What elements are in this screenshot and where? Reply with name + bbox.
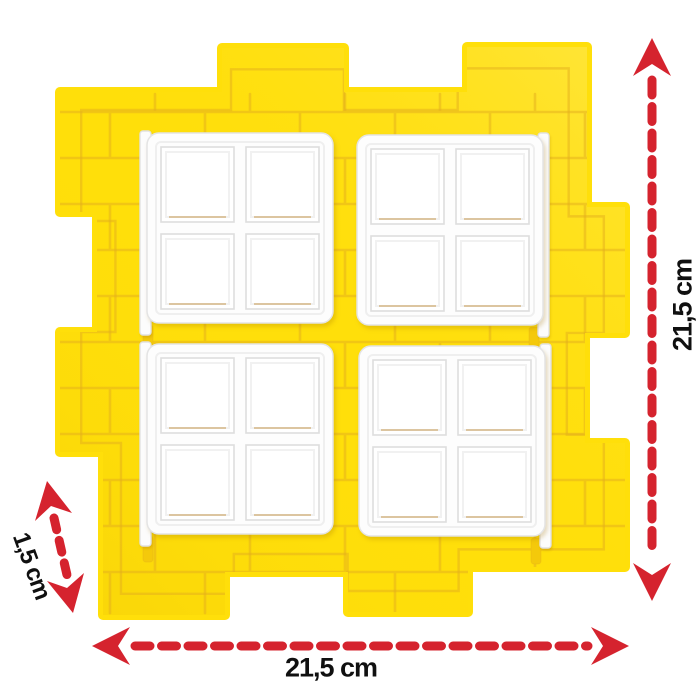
- panel-illustration: [0, 0, 700, 700]
- width-label: 21,5 cm: [285, 655, 377, 682]
- product-dimension-image: 21,5 cm 21,5 cm 1,5 cm: [0, 0, 700, 700]
- window-top-left: [147, 133, 333, 323]
- height-arrow: [633, 38, 671, 601]
- window-bottom-left: [147, 344, 333, 534]
- arrowhead-up-icon: [633, 38, 671, 76]
- arrowhead-right-icon: [591, 627, 629, 665]
- arrowhead-left-icon: [92, 627, 130, 665]
- window-bottom-right: [359, 346, 545, 536]
- window-top-right: [357, 135, 543, 325]
- arrowhead-down-icon: [633, 563, 671, 601]
- height-label: 21,5 cm: [670, 259, 697, 351]
